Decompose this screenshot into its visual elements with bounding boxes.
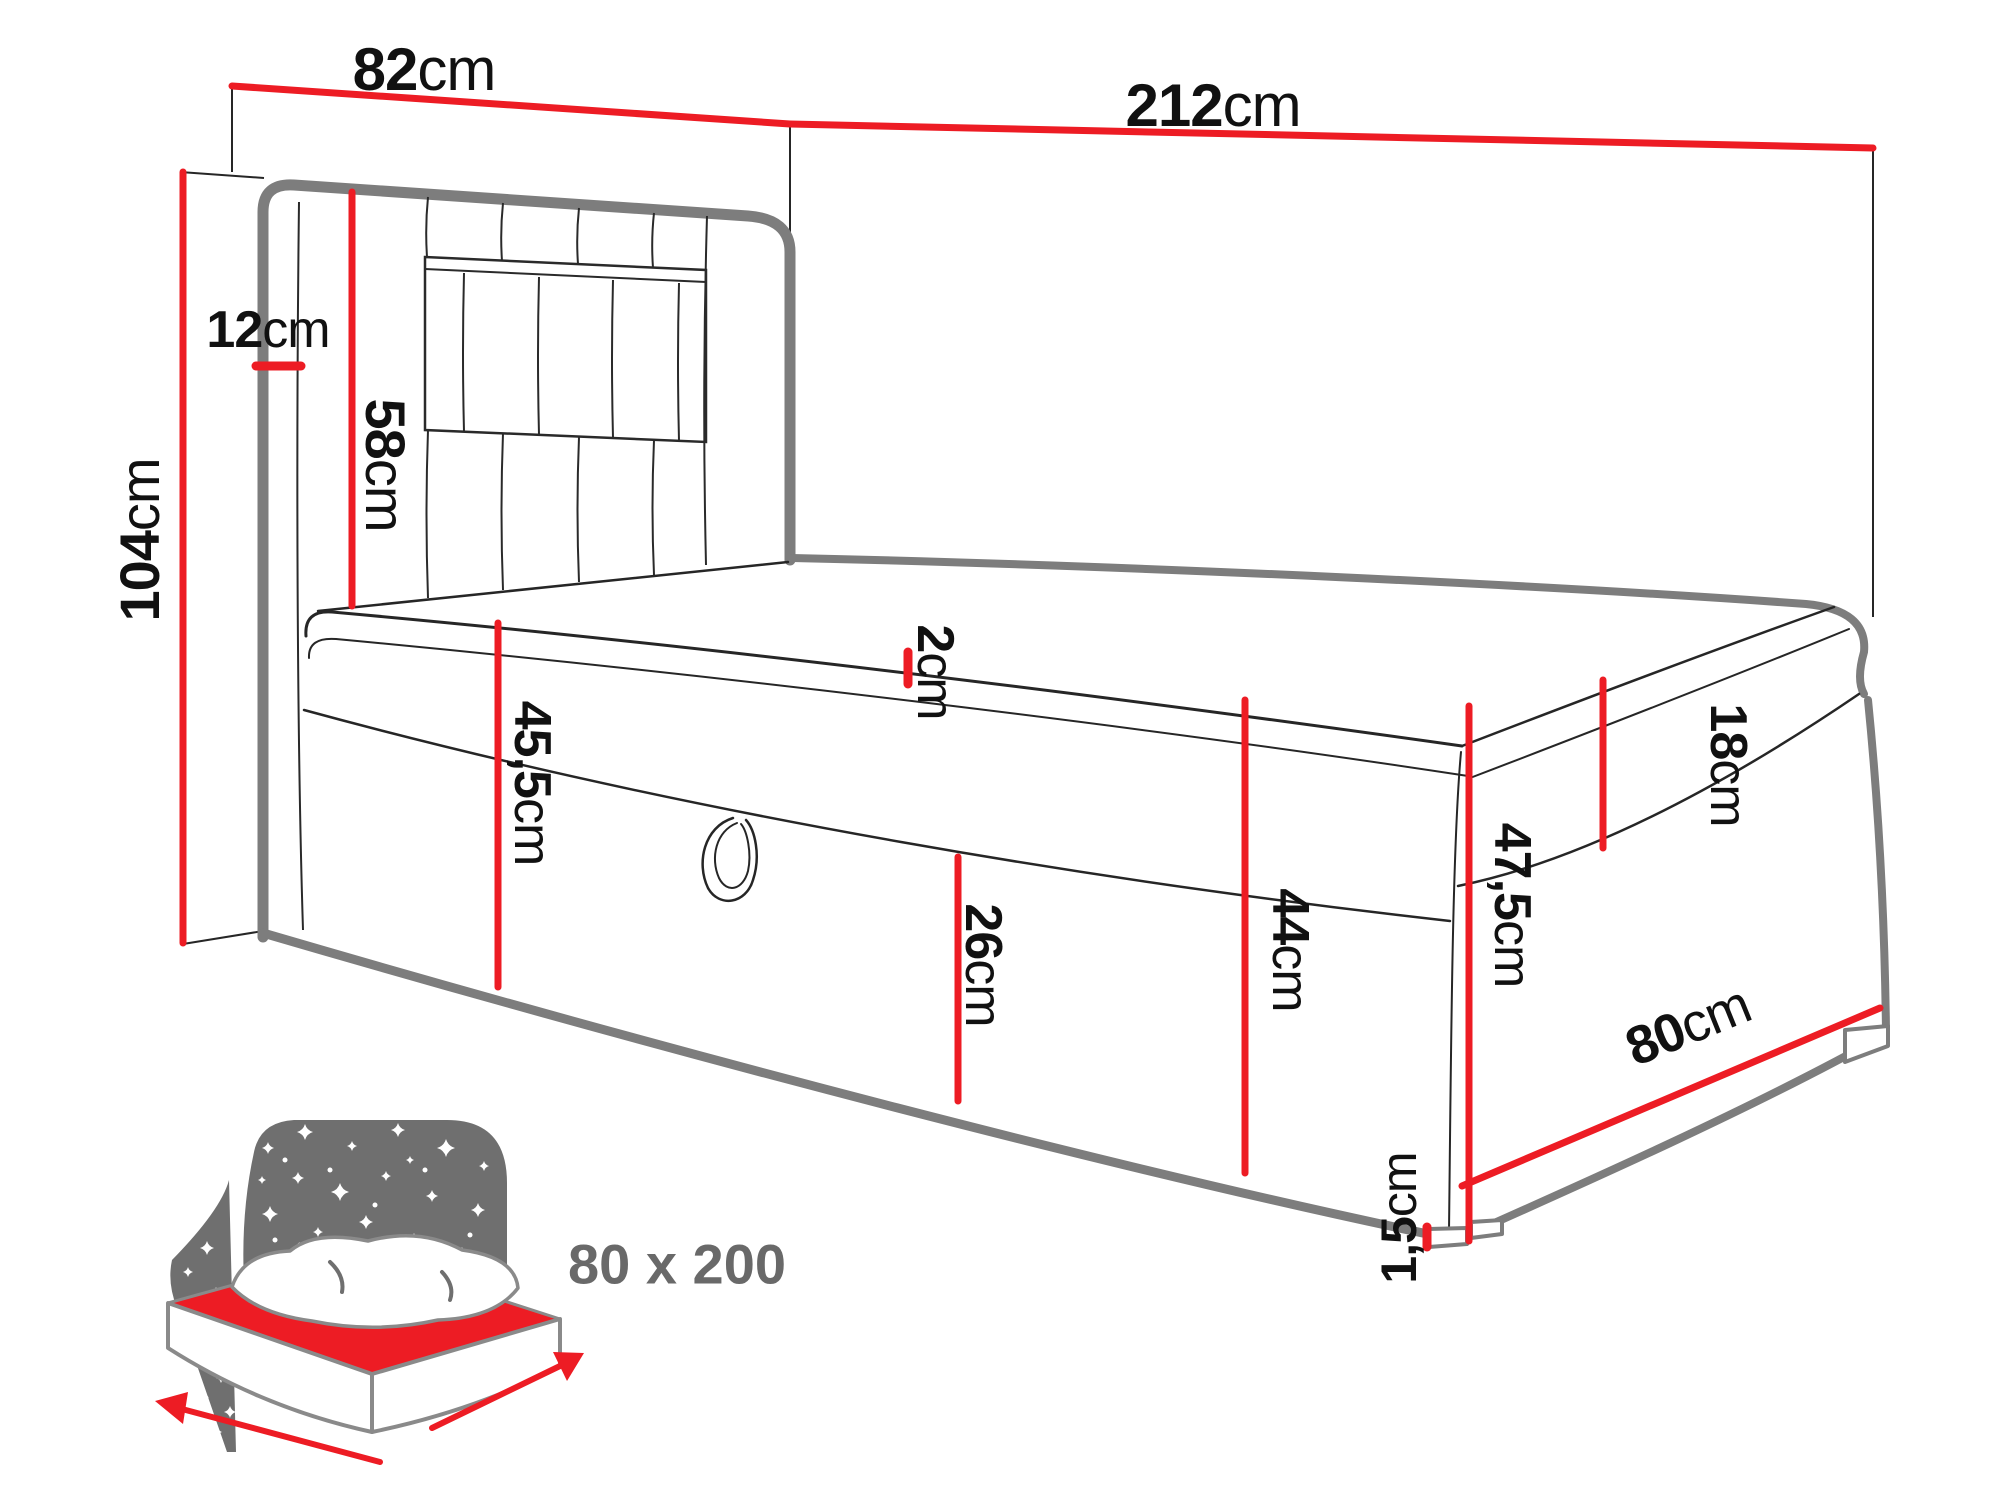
- dimension-foot-end-height: 47,5cm: [1486, 823, 1538, 988]
- dimension-headboard-depth: 12cm: [206, 304, 329, 356]
- base-right-edge: [1868, 700, 1886, 1032]
- dimension-total-height: 104cm: [112, 458, 168, 621]
- dimension-total-length: 212cm: [1125, 76, 1300, 136]
- dimension-headboard-width: 82cm: [353, 40, 496, 100]
- mattress-front-edge: [306, 612, 1462, 746]
- dim-line-82: [232, 86, 790, 124]
- dimension-legs: 1,5cm: [1374, 1152, 1424, 1283]
- front-corner-contour: [1449, 752, 1461, 1231]
- mattress-head-edge: [318, 562, 788, 611]
- mattress-size-label: 80 x 200: [568, 1232, 786, 1297]
- extension-lines: [180, 86, 1873, 944]
- headboard-panel: [425, 257, 706, 442]
- dimension-headboard-panel: 58cm: [357, 399, 413, 532]
- arrow-head-length: [155, 1392, 188, 1424]
- dimension-topper: 2cm: [909, 624, 961, 719]
- dimension-side-front: 45,5cm: [506, 701, 558, 866]
- dimension-lines: [183, 86, 1880, 1247]
- bed-size-icon: [155, 1120, 584, 1462]
- topper-seam-foot: [1470, 629, 1849, 778]
- bed-dimension-diagram: 82cm 212cm 104cm 12cm 58cm 2cm 45,5cm 26…: [0, 0, 2000, 1500]
- handle-inner-line: [715, 823, 749, 888]
- dimension-mattress-height: 18cm: [1702, 703, 1754, 826]
- dim-line-212: [790, 124, 1873, 148]
- mattress-foot-top-edge: [1462, 607, 1834, 746]
- dimension-base-side: 44cm: [1264, 888, 1316, 1011]
- dimension-storage-flap: 26cm: [957, 903, 1009, 1026]
